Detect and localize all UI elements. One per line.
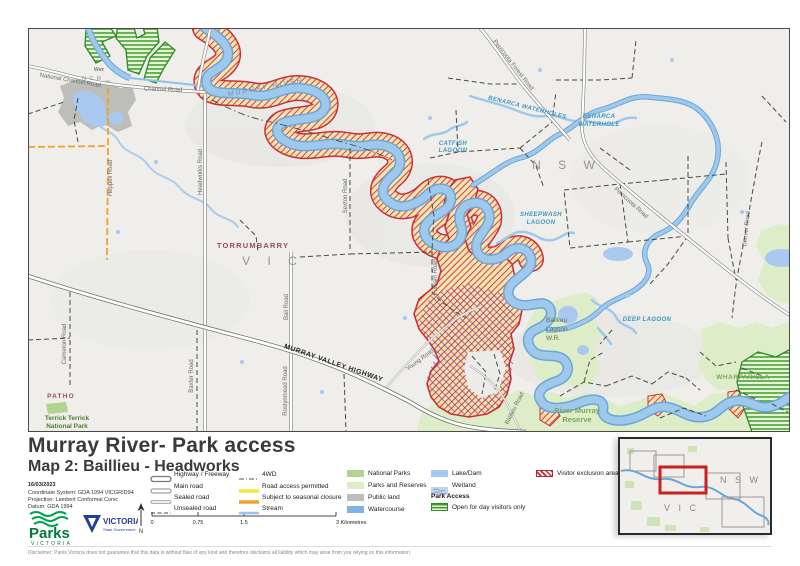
- label-catfish-lagoon: CATFISH: [439, 141, 468, 147]
- legend-swatch-public-land: [347, 494, 364, 501]
- label-fulham-road: Fulham Road: [433, 259, 439, 295]
- legend-label-highway: Highway / Freeway: [174, 471, 229, 478]
- map-canvas[interactable]: National Channel Road Channel Road Headw…: [28, 28, 790, 432]
- legend-label-national-parks: National Parks: [368, 470, 410, 477]
- legend-label-4wd: 4WD: [262, 471, 276, 478]
- legend-label-stream: Stream: [262, 505, 283, 512]
- scale-tick-3: 3 Kilometres: [336, 520, 367, 526]
- scale-tick-1: 0.75: [193, 520, 204, 526]
- label-river-murray-reserve: River Murray: [554, 406, 601, 415]
- label-deep-lagoon: DEEP LAGOON: [623, 317, 672, 323]
- label-cameron-road: Cameron Road: [62, 324, 68, 365]
- label-baillieu-lagoon-wr-2: Lagoon: [546, 326, 568, 333]
- north-arrow: N: [134, 502, 148, 539]
- disclaimer-text: Disclaimer: Parks Victoria does not guar…: [28, 550, 728, 556]
- svg-text:N: N: [139, 529, 143, 534]
- inset-nsw-label: N S W: [720, 475, 761, 485]
- label-roslynmead-road: Roslynmead Road: [283, 366, 289, 415]
- inset-current-map-frame[interactable]: [660, 467, 706, 493]
- legend-label-watercourse: Watercourse: [368, 506, 405, 513]
- label-catfish-lagoon-2: LAGOON: [439, 148, 468, 154]
- label-baxter-road: Baxter Road: [189, 359, 195, 392]
- label-baillieu-lagoon-wr-3: W.R.: [546, 335, 560, 342]
- parks-logo-waves: [30, 512, 68, 526]
- map-page: National Channel Road Channel Road Headw…: [0, 0, 800, 566]
- label-nsw: N S W: [532, 158, 602, 172]
- legend-label-main-road: Main road: [174, 483, 203, 490]
- legend-label-wetland: Wetland: [452, 482, 476, 489]
- legend-swatch-parks-reserves: [347, 482, 364, 489]
- label-ncr: N C R: [82, 76, 102, 82]
- label-murray-valley-highway: MURRAY VALLEY HIGHWAY: [283, 343, 384, 384]
- legend-swatch-exclusion: [536, 470, 553, 477]
- legend-park-access-header: Park Access: [431, 493, 469, 500]
- label-denver-road: Denver Road: [742, 211, 752, 247]
- parks-logo-text: Parks: [29, 525, 70, 542]
- victoria-gov-logo: VICTORIA State Government: [80, 508, 138, 551]
- victoria-logo-subtext: State Government: [103, 527, 136, 532]
- map-date: 16/03/2023: [28, 482, 56, 488]
- inset-vic-label: V I C: [664, 503, 699, 513]
- label-sheepwash-lagoon-2: LAGOON: [527, 220, 556, 226]
- legend-symbol-stream: [238, 504, 260, 522]
- legend-swatch-open-day: [431, 503, 448, 511]
- legend-swatch-lake-dam: [431, 470, 448, 477]
- inset-map-frames: [630, 451, 764, 527]
- label-patho: PATHO: [47, 393, 75, 400]
- label-sexton-road: Sexton Road: [343, 179, 349, 214]
- label-baillieu-lagoon-wr: Baillieu: [546, 317, 567, 324]
- legend-symbol-unsealed-road: [150, 504, 172, 522]
- projection: Projection: Lambert Conformal Conic: [28, 497, 134, 504]
- label-headworks-road: Headworks Road: [198, 149, 204, 195]
- legend-label-lake-dam: Lake/Dam: [452, 470, 482, 477]
- label-bail-road: Bail Road: [284, 294, 290, 320]
- coordinate-system: Coordinate System: GDA 1994 VICGRID94: [28, 490, 134, 497]
- national-park-area: [46, 402, 68, 414]
- label-heppell-road: Heppell Road: [108, 160, 114, 196]
- legend-swatch-national-parks: [347, 470, 364, 477]
- label-terrick-terrick: Terrick Terrick: [45, 415, 90, 422]
- legend-label-public-land: Public land: [368, 494, 400, 501]
- legend-label-sealed-road: Sealed road: [174, 494, 209, 501]
- legend-label-exclusion: Visitor exclusion area: [557, 470, 619, 477]
- label-river-murray-reserve-2: Reserve: [562, 415, 591, 424]
- label-channel-road: Channel Road: [144, 86, 183, 93]
- map-svg: National Channel Road Channel Road Headw…: [29, 29, 789, 431]
- legend-swatch-watercourse: [347, 506, 364, 513]
- inset-locator-map[interactable]: N S W V I C: [618, 437, 772, 535]
- inset-green-patches: [625, 446, 709, 532]
- label-wharparilla: WHARPARILLA: [716, 374, 769, 381]
- legend-label-open-day: Open for day visitors only: [452, 504, 525, 511]
- parks-victoria-logo: Parks VICTORIA: [28, 508, 76, 551]
- legend-label-unsealed-road: Unsealed road: [174, 505, 216, 512]
- legend-label-road-access-permitted: Road access permitted: [262, 483, 328, 490]
- label-vic: V I C: [242, 254, 304, 268]
- label-torrumbarry: TORRUMBARRY: [217, 241, 289, 250]
- scale-bar: 0 0.75 1.5 3 Kilometres: [148, 510, 378, 530]
- label-benarca-waterhole: BENARCA: [583, 114, 616, 120]
- label-terrick-terrick-2: National Park: [46, 423, 88, 430]
- page-title: Murray River- Park access: [28, 434, 296, 458]
- legend-label-seasonal-closure: Subject to seasonal closure: [262, 494, 342, 501]
- victoria-logo-text: VICTORIA: [103, 517, 138, 526]
- label-sheepwash-lagoon: SHEEPWASH: [520, 212, 562, 218]
- label-weir: Weir: [94, 67, 105, 73]
- footer-divider: [28, 546, 772, 547]
- label-benarca-waterhole-2: WATERHOLE: [578, 122, 620, 128]
- legend-label-parks-reserves: Parks and Reserves: [368, 482, 427, 489]
